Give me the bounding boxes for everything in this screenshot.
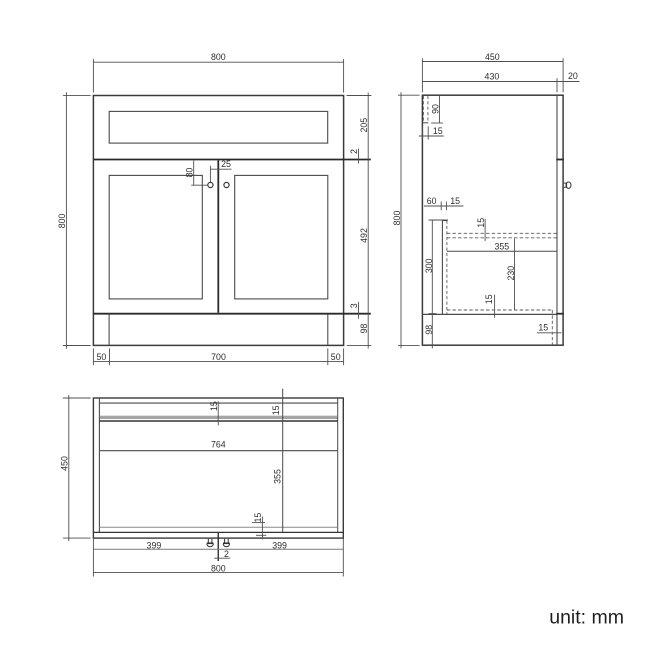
svg-text:90: 90 bbox=[430, 104, 440, 114]
svg-text:15: 15 bbox=[476, 218, 486, 228]
svg-text:80: 80 bbox=[185, 168, 195, 178]
svg-text:800: 800 bbox=[211, 52, 226, 62]
svg-text:20: 20 bbox=[568, 71, 578, 81]
svg-text:355: 355 bbox=[273, 469, 283, 484]
svg-text:230: 230 bbox=[506, 266, 516, 281]
svg-text:430: 430 bbox=[485, 71, 500, 81]
svg-text:15: 15 bbox=[271, 405, 281, 415]
svg-text:450: 450 bbox=[485, 52, 500, 62]
svg-text:15: 15 bbox=[484, 294, 494, 304]
svg-text:60: 60 bbox=[427, 196, 437, 206]
svg-text:15: 15 bbox=[538, 323, 548, 333]
svg-text:800: 800 bbox=[57, 213, 67, 228]
svg-text:800: 800 bbox=[211, 563, 226, 573]
svg-text:25: 25 bbox=[221, 159, 231, 169]
svg-text:764: 764 bbox=[211, 440, 226, 450]
svg-text:50: 50 bbox=[331, 352, 341, 362]
svg-text:15: 15 bbox=[433, 126, 443, 136]
svg-text:399: 399 bbox=[272, 540, 287, 550]
svg-text:15: 15 bbox=[450, 196, 460, 206]
svg-text:492: 492 bbox=[359, 228, 369, 243]
svg-text:unit: mm: unit: mm bbox=[549, 607, 624, 629]
svg-text:450: 450 bbox=[59, 456, 69, 471]
svg-text:300: 300 bbox=[424, 258, 434, 273]
svg-text:700: 700 bbox=[211, 352, 226, 362]
svg-text:15: 15 bbox=[253, 513, 263, 523]
svg-text:355: 355 bbox=[494, 241, 509, 251]
svg-text:800: 800 bbox=[392, 211, 402, 226]
svg-text:15: 15 bbox=[209, 401, 219, 411]
svg-text:98: 98 bbox=[424, 325, 434, 335]
svg-text:399: 399 bbox=[147, 540, 162, 550]
svg-text:3: 3 bbox=[349, 303, 359, 308]
svg-text:2: 2 bbox=[224, 549, 229, 559]
svg-text:50: 50 bbox=[97, 352, 107, 362]
svg-text:2: 2 bbox=[349, 149, 359, 154]
svg-text:205: 205 bbox=[359, 118, 369, 133]
svg-text:98: 98 bbox=[359, 324, 369, 334]
